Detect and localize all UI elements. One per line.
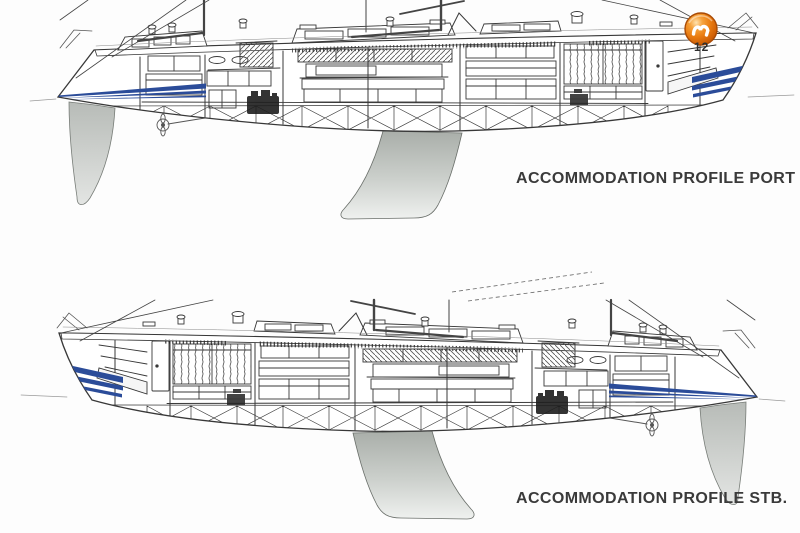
- scanned-drawing-page: 12 ACCOMMODATION PROFILE PORT ACCOMMODAT…: [0, 0, 800, 533]
- dashed-sail-outline: [452, 272, 604, 301]
- bow-station-annotation: 12: [694, 40, 709, 54]
- technical-drawing-canvas: [0, 0, 800, 533]
- starboard-accommodation-drawing: [21, 300, 785, 519]
- starboard-profile-caption: ACCOMMODATION PROFILE STB.: [516, 490, 787, 508]
- port-profile-caption: ACCOMMODATION PROFILE PORT: [516, 170, 795, 188]
